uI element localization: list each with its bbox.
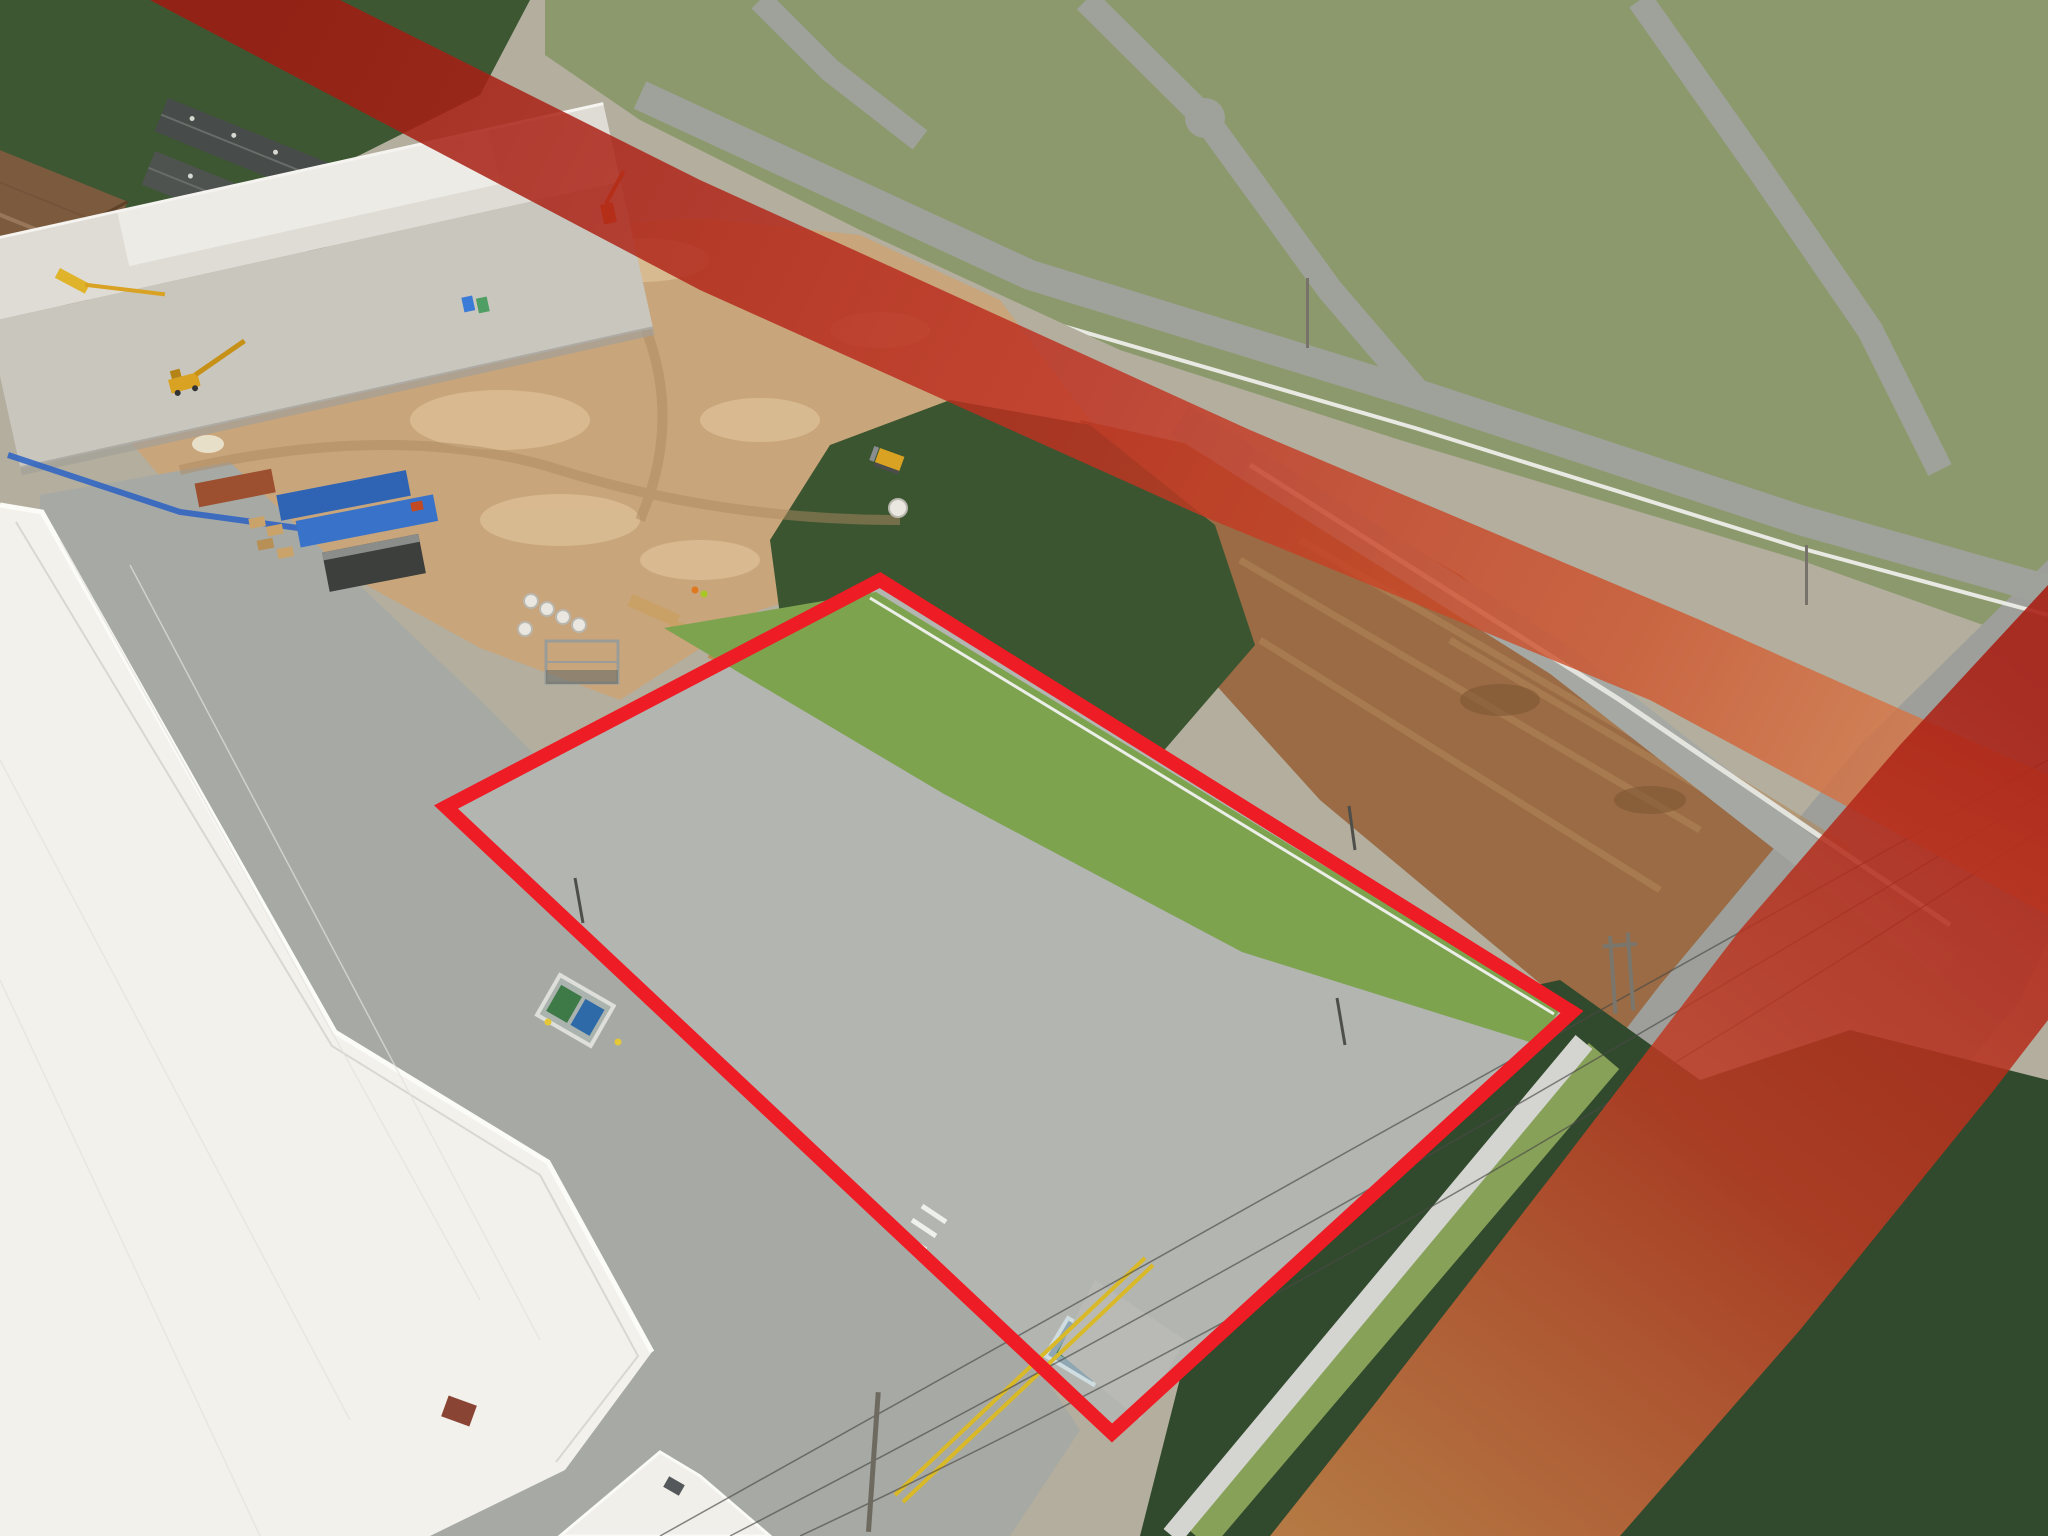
- worker: [692, 587, 699, 594]
- utility-pole: [1306, 278, 1309, 348]
- soil-patch: [1614, 786, 1686, 814]
- utility-pole: [1805, 545, 1808, 605]
- bollard: [545, 1019, 552, 1026]
- bollard: [615, 1039, 622, 1046]
- soil-patch: [1460, 684, 1540, 716]
- cul-de-sac: [1185, 98, 1225, 138]
- sand-pile: [192, 435, 224, 453]
- aerial-photo: [0, 0, 2048, 1536]
- aerial-scene: [0, 0, 2048, 1536]
- worker: [701, 591, 708, 598]
